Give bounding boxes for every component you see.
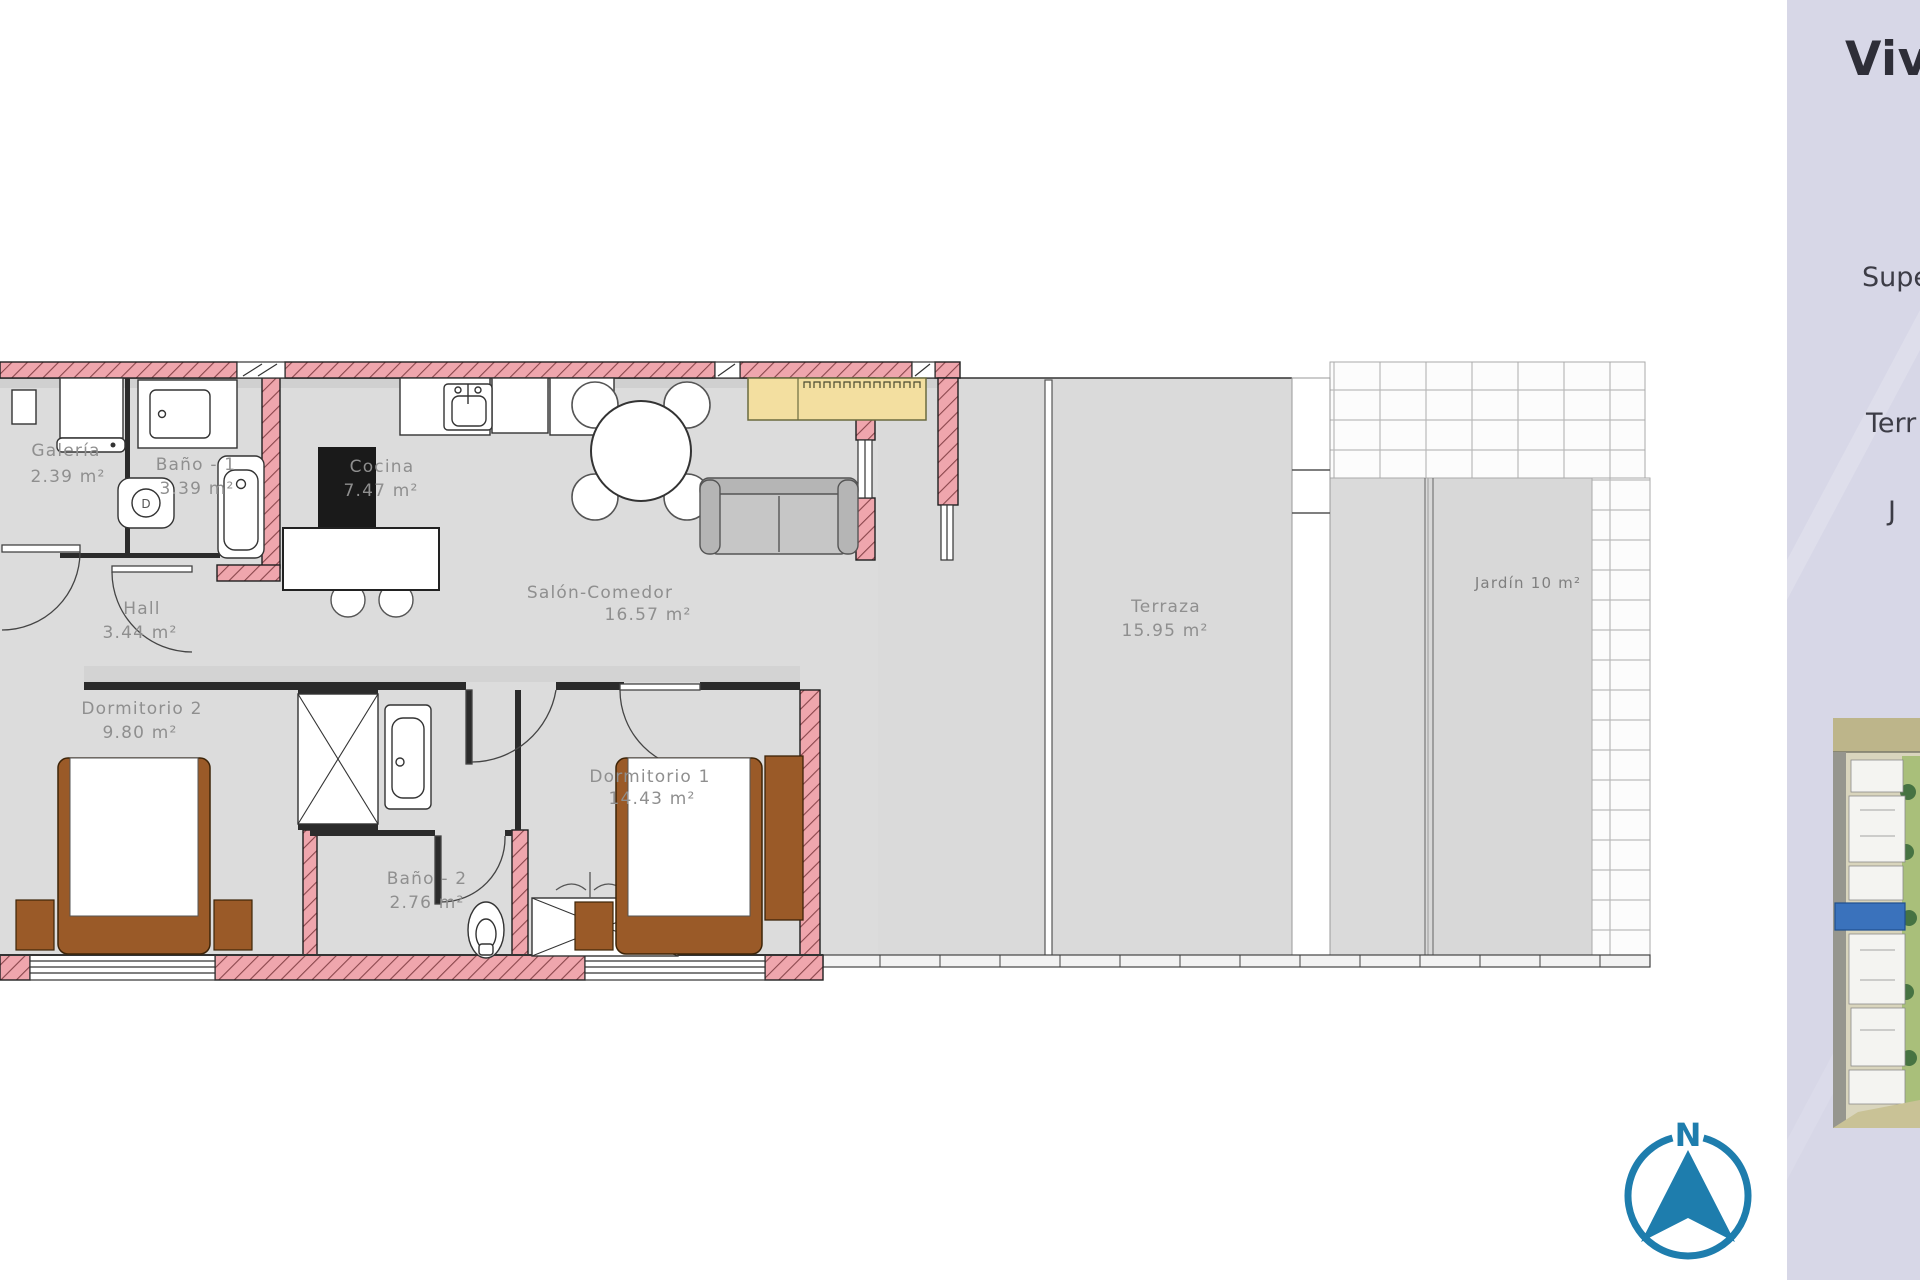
compass-arrow-icon: [1641, 1150, 1735, 1242]
nightstand: [575, 902, 613, 950]
vanity-2: [385, 705, 431, 809]
site-plan-thumbnail: [1833, 718, 1920, 1128]
svg-text:9.80 m²: 9.80 m²: [102, 723, 177, 743]
panel-title: Vivie: [1845, 32, 1920, 87]
svg-text:3.39 m²: 3.39 m²: [159, 479, 234, 499]
wall-shadow-mid: [84, 666, 800, 682]
svg-text:3.44 m²: 3.44 m²: [102, 623, 177, 643]
jardin-floor: [1428, 478, 1592, 962]
panel-jardin-label: J: [1888, 496, 1896, 527]
svg-text:15.95 m²: 15.95 m²: [1121, 621, 1208, 641]
nightstand: [214, 900, 252, 950]
sofa: [700, 478, 858, 554]
panel-terraza-label: Terr: [1866, 408, 1916, 439]
sideboard: [748, 378, 926, 420]
svg-text:Hall: Hall: [123, 599, 160, 619]
svg-text:Cocina: Cocina: [350, 457, 415, 477]
svg-text:Galería: Galería: [31, 441, 100, 461]
svg-text:Salón-Comedor: Salón-Comedor: [527, 583, 673, 603]
svg-text:14.43 m²: 14.43 m²: [608, 789, 695, 809]
panel-superficie-label: Superfic: [1862, 262, 1920, 293]
glass-balustrade: [1045, 380, 1052, 965]
svg-text:Baño - 2: Baño - 2: [387, 869, 468, 889]
toilet-d-mark: D: [141, 497, 150, 511]
north-compass: N: [1628, 1116, 1748, 1256]
terrace-bottom-border: [823, 955, 1650, 967]
round-table: [591, 401, 691, 501]
svg-text:7.47 m²: 7.47 m²: [343, 481, 418, 501]
site-road: [1833, 752, 1846, 1128]
svg-text:16.57 m²: 16.57 m²: [604, 605, 691, 625]
svg-text:Baño - 1: Baño - 1: [156, 455, 237, 475]
dining-table-set: [572, 382, 710, 520]
svg-text:Jardín 10 m²: Jardín 10 m²: [1474, 574, 1581, 592]
nightstand: [16, 900, 54, 950]
wardrobe-dormitorio-1: [765, 756, 803, 920]
svg-text:Terraza: Terraza: [1130, 597, 1201, 617]
floor-plan-sheet: D: [0, 0, 1920, 1280]
side-passage-floor: [1330, 478, 1428, 962]
terrace-pillar-wall: [1292, 378, 1330, 965]
svg-text:2.39 m²: 2.39 m²: [30, 467, 105, 487]
closet: [298, 694, 378, 824]
toilet-2: [468, 902, 504, 958]
svg-text:Dormitorio 1: Dormitorio 1: [589, 767, 710, 787]
compass-north-label: N: [1675, 1116, 1702, 1154]
floor-plan-drawing: D: [0, 0, 1920, 1280]
svg-text:Dormitorio 2: Dormitorio 2: [81, 699, 202, 719]
room-label-jardin: Jardín 10 m²: [1474, 574, 1581, 592]
svg-text:2.76 m²: 2.76 m²: [389, 893, 464, 913]
site-highlighted-unit: [1835, 903, 1905, 930]
